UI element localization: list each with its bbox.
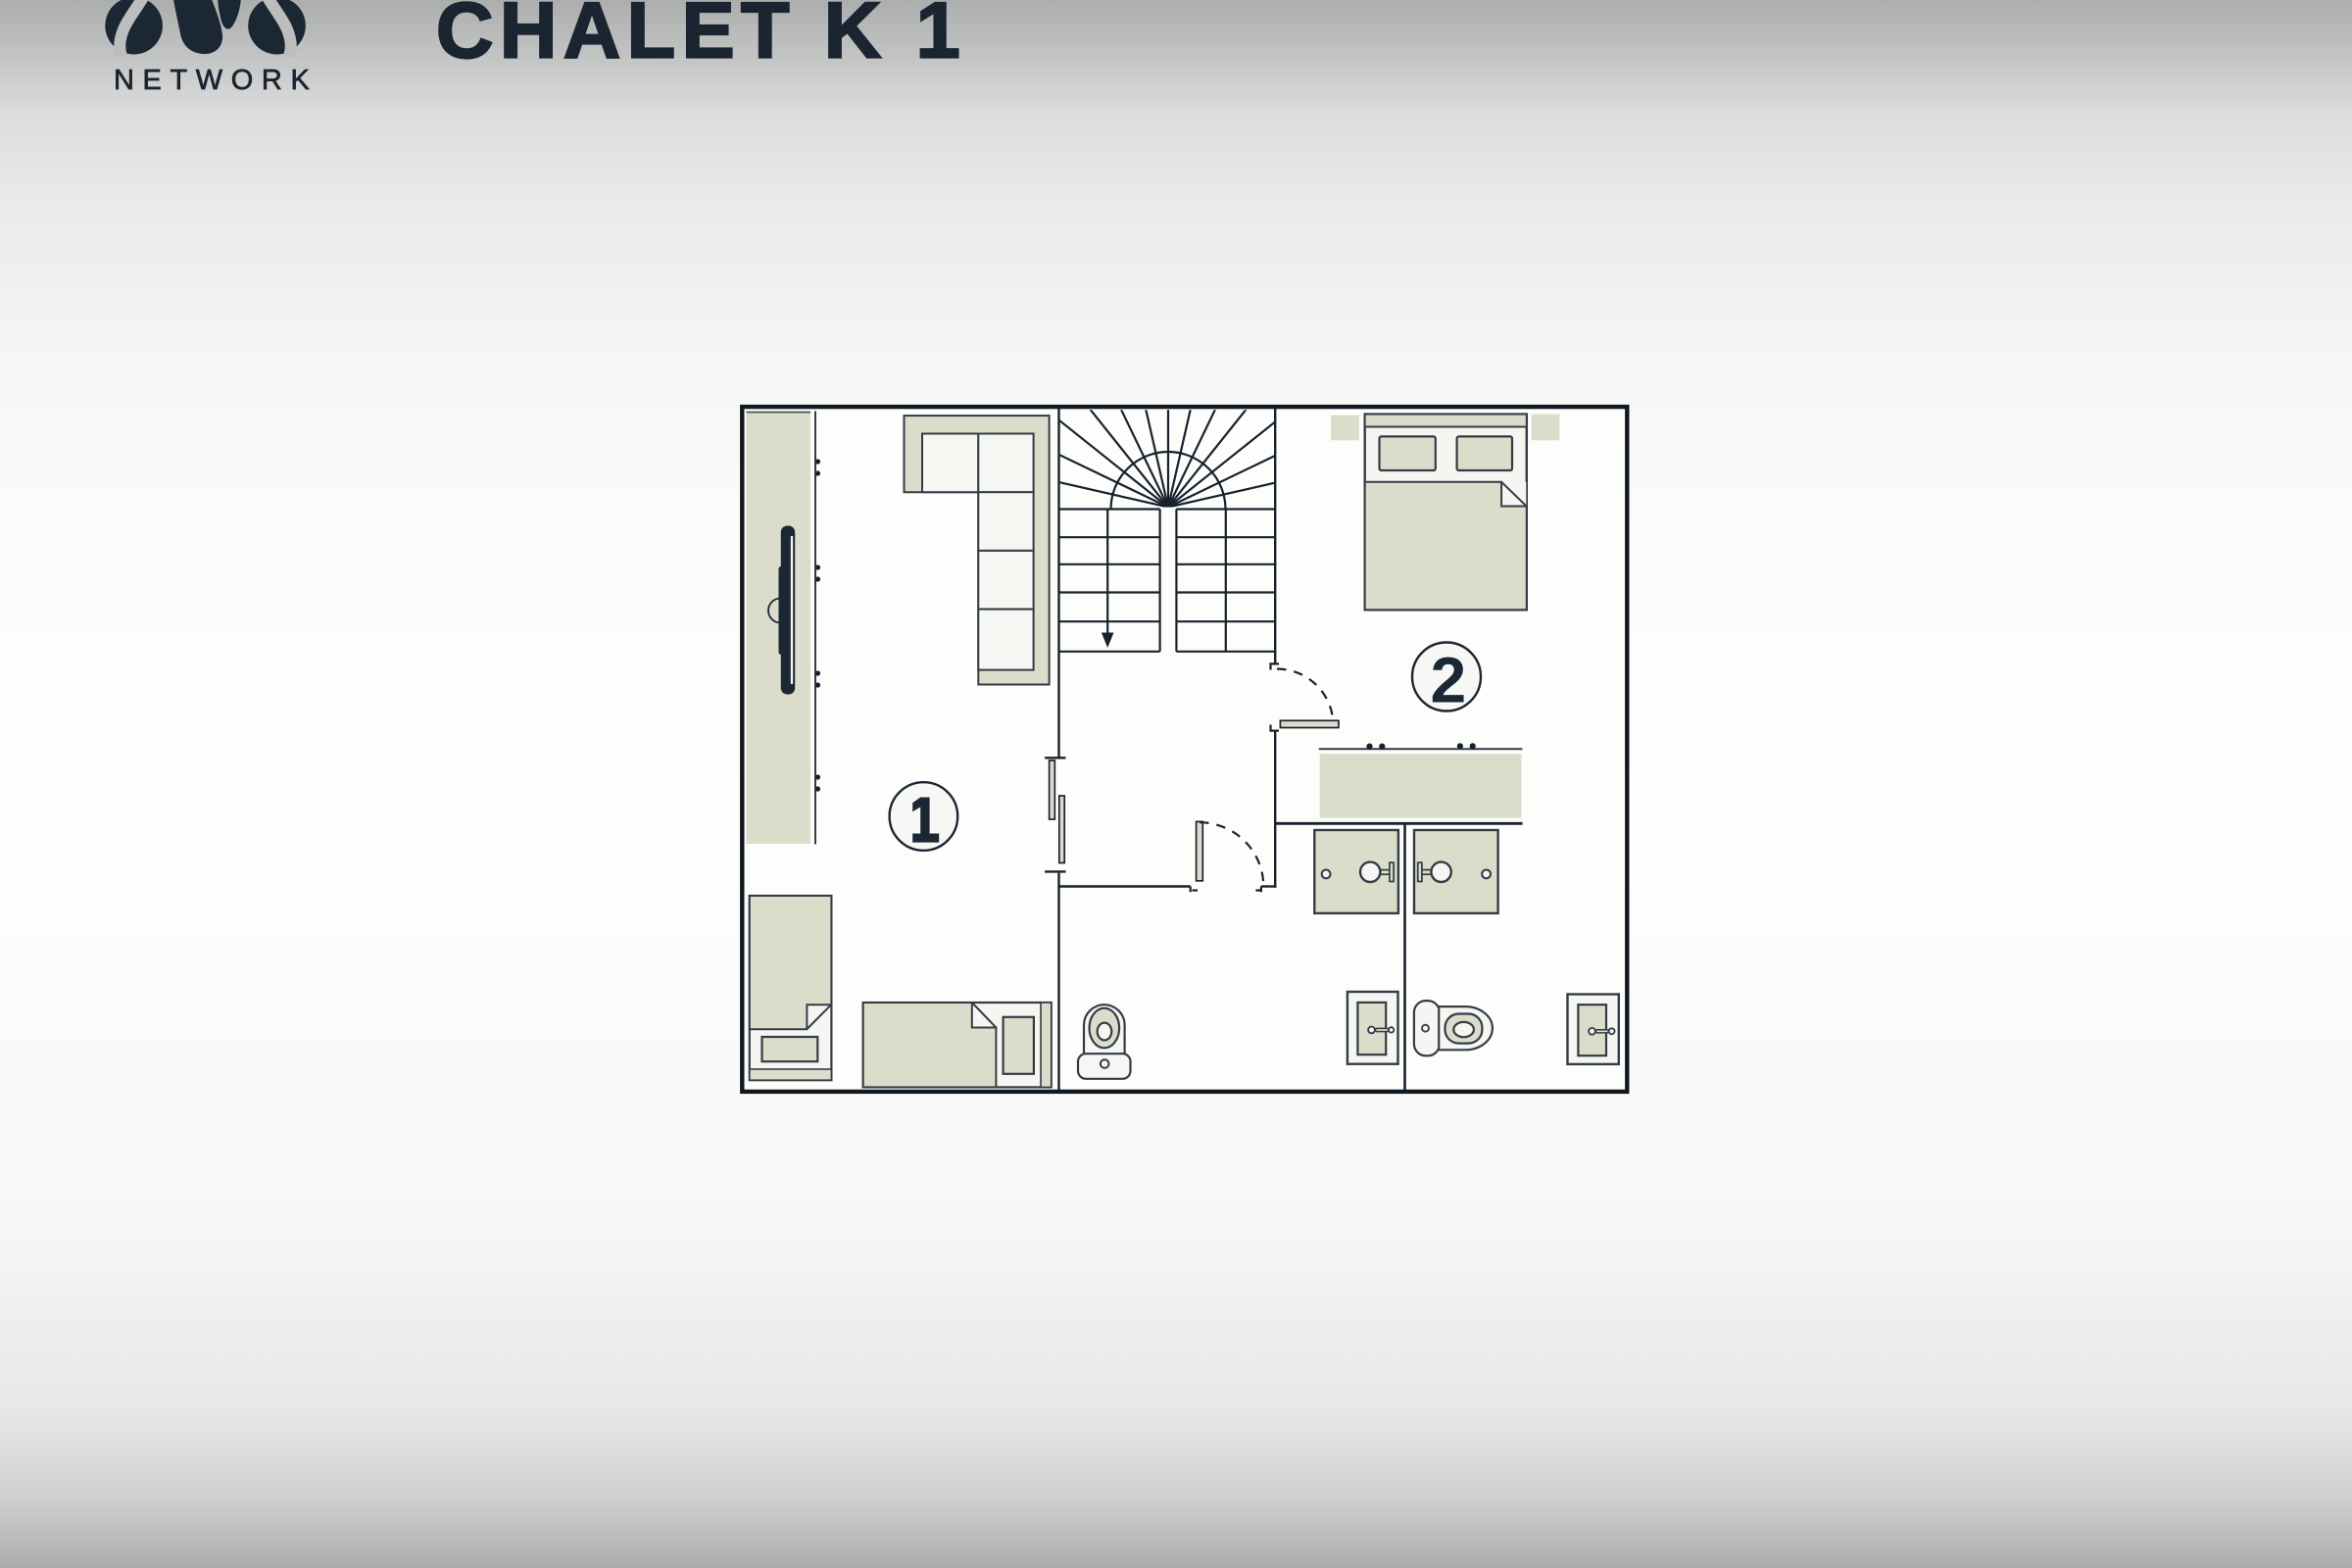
svg-text:2: 2 [1430,644,1466,716]
svg-text:CHALET K 1: CHALET K 1 [436,0,966,75]
svg-text:NETWORK: NETWORK [114,65,318,96]
